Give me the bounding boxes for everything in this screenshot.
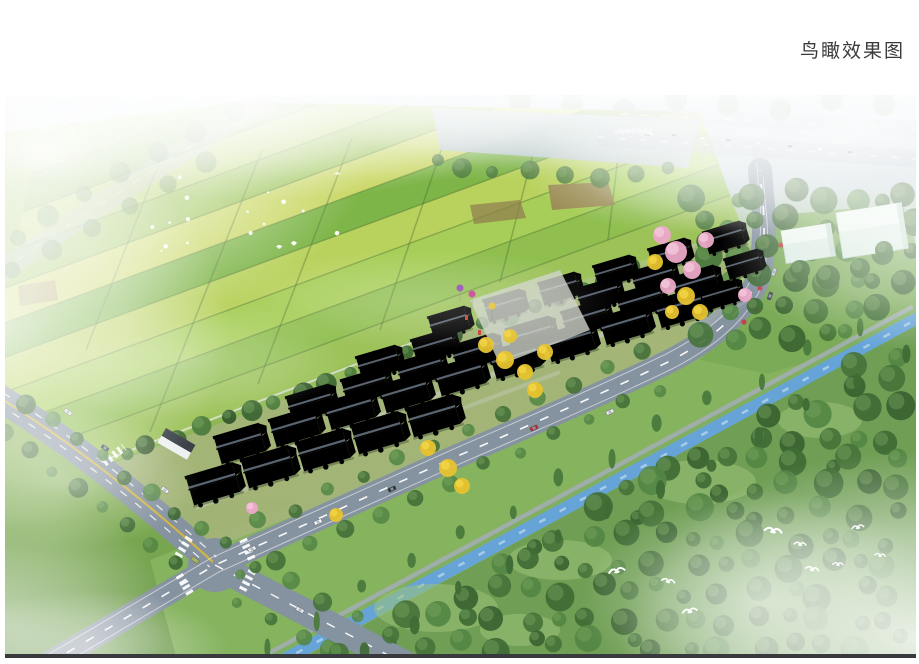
page: 鸟瞰效果图 [0, 0, 919, 664]
scene-root [0, 0, 919, 664]
page-title: 鸟瞰效果图 [800, 36, 905, 63]
aerial-rendering-canvas [0, 0, 919, 664]
aerial-rendering [0, 0, 919, 664]
page-header: 鸟瞰效果图 [0, 0, 919, 95]
render-bottom-edge [5, 654, 916, 658]
